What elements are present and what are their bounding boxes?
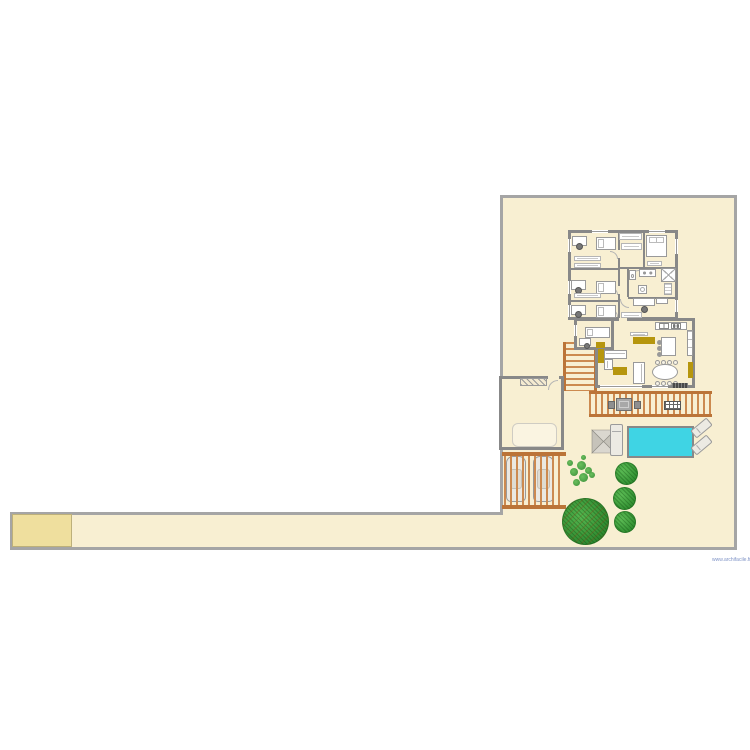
- sliding-door: [652, 385, 668, 388]
- toilet: [629, 270, 636, 280]
- sliding-door: [600, 385, 642, 388]
- carport-pergola: [504, 452, 564, 509]
- kitchen-island: [661, 337, 676, 356]
- single-bed: [596, 305, 616, 318]
- washing-machine: [638, 285, 647, 294]
- plot-strip-area: [10, 512, 500, 550]
- bench: [656, 298, 668, 304]
- wardrobe: [574, 293, 601, 298]
- dining-table: [652, 364, 678, 380]
- wardrobe: [621, 243, 642, 250]
- wall: [570, 300, 618, 302]
- bar-stool: [657, 352, 662, 357]
- driveway: [12, 514, 72, 547]
- corner-sofa: [604, 350, 627, 359]
- small-plant: [563, 455, 601, 491]
- bar-stool: [657, 340, 662, 345]
- plant-leaf: [573, 479, 580, 486]
- office-chair: [575, 311, 582, 318]
- desk: [633, 298, 655, 306]
- plant-leaf: [567, 460, 573, 466]
- outdoor-chair: [608, 401, 615, 409]
- swimming-pool: [627, 426, 694, 458]
- single-bed: [596, 237, 616, 250]
- shrub: [613, 487, 636, 510]
- plot-joint: [496, 515, 505, 547]
- corner-sofa-chaise: [604, 359, 613, 370]
- dining-cabinet: [688, 362, 693, 378]
- kitchen-tall-units: [687, 330, 693, 356]
- garage-car-outline: [512, 423, 557, 447]
- kitchen-sink: [659, 323, 669, 329]
- wall: [618, 294, 620, 318]
- office-chair: [576, 243, 583, 250]
- bar-stool: [657, 346, 662, 351]
- dining-chair: [655, 381, 660, 386]
- floor-mat: [672, 383, 688, 388]
- wall: [643, 232, 645, 267]
- dining-chair: [661, 360, 666, 365]
- outdoor-table: [616, 398, 632, 411]
- plant-leaf: [589, 472, 595, 478]
- window: [568, 239, 571, 252]
- carport-rail-top: [502, 452, 566, 456]
- shower: [661, 268, 676, 282]
- bbq-grill: [664, 401, 681, 410]
- south-deck-rail-bottom: [589, 414, 712, 417]
- window: [675, 300, 678, 312]
- coffee-table: [613, 367, 627, 375]
- cabinet: [647, 261, 662, 266]
- plant-leaf: [581, 455, 586, 460]
- south-deck-rail-top: [589, 391, 712, 394]
- dining-chair: [667, 360, 672, 365]
- sideboard-label: [630, 332, 648, 336]
- outdoor-chair: [634, 401, 641, 409]
- wall: [570, 268, 618, 270]
- floor-plan-canvas: www.archifacile.fr: [0, 0, 750, 750]
- plant-leaf: [570, 468, 578, 476]
- dining-chair: [655, 360, 660, 365]
- window: [675, 239, 678, 254]
- window: [592, 230, 608, 233]
- sun-lounger: [610, 424, 623, 456]
- window: [574, 325, 577, 336]
- watermark: www.archifacile.fr: [712, 557, 750, 563]
- window: [649, 230, 665, 233]
- dining-chair: [673, 360, 678, 365]
- double-bed: [646, 235, 667, 257]
- sideboard: [633, 337, 655, 344]
- guest-bed: [585, 327, 610, 338]
- sofa: [633, 362, 645, 384]
- large-tree: [562, 498, 609, 545]
- double-sink: [639, 269, 656, 277]
- wardrobe: [574, 256, 601, 261]
- wardrobe: [619, 233, 642, 240]
- bathroom-shelf: [664, 283, 672, 295]
- office-chair: [584, 343, 590, 349]
- shrub: [615, 462, 638, 485]
- garage-door: [520, 378, 547, 386]
- shrub: [614, 511, 636, 533]
- dresser: [596, 342, 605, 348]
- wall: [618, 258, 620, 286]
- plant-leaf: [579, 473, 588, 482]
- wardrobe: [621, 312, 642, 318]
- dining-chair: [661, 381, 666, 386]
- stove: [671, 323, 681, 329]
- wardrobe: [574, 263, 601, 268]
- carport-rail-bottom: [502, 505, 566, 509]
- office-chair: [641, 306, 648, 313]
